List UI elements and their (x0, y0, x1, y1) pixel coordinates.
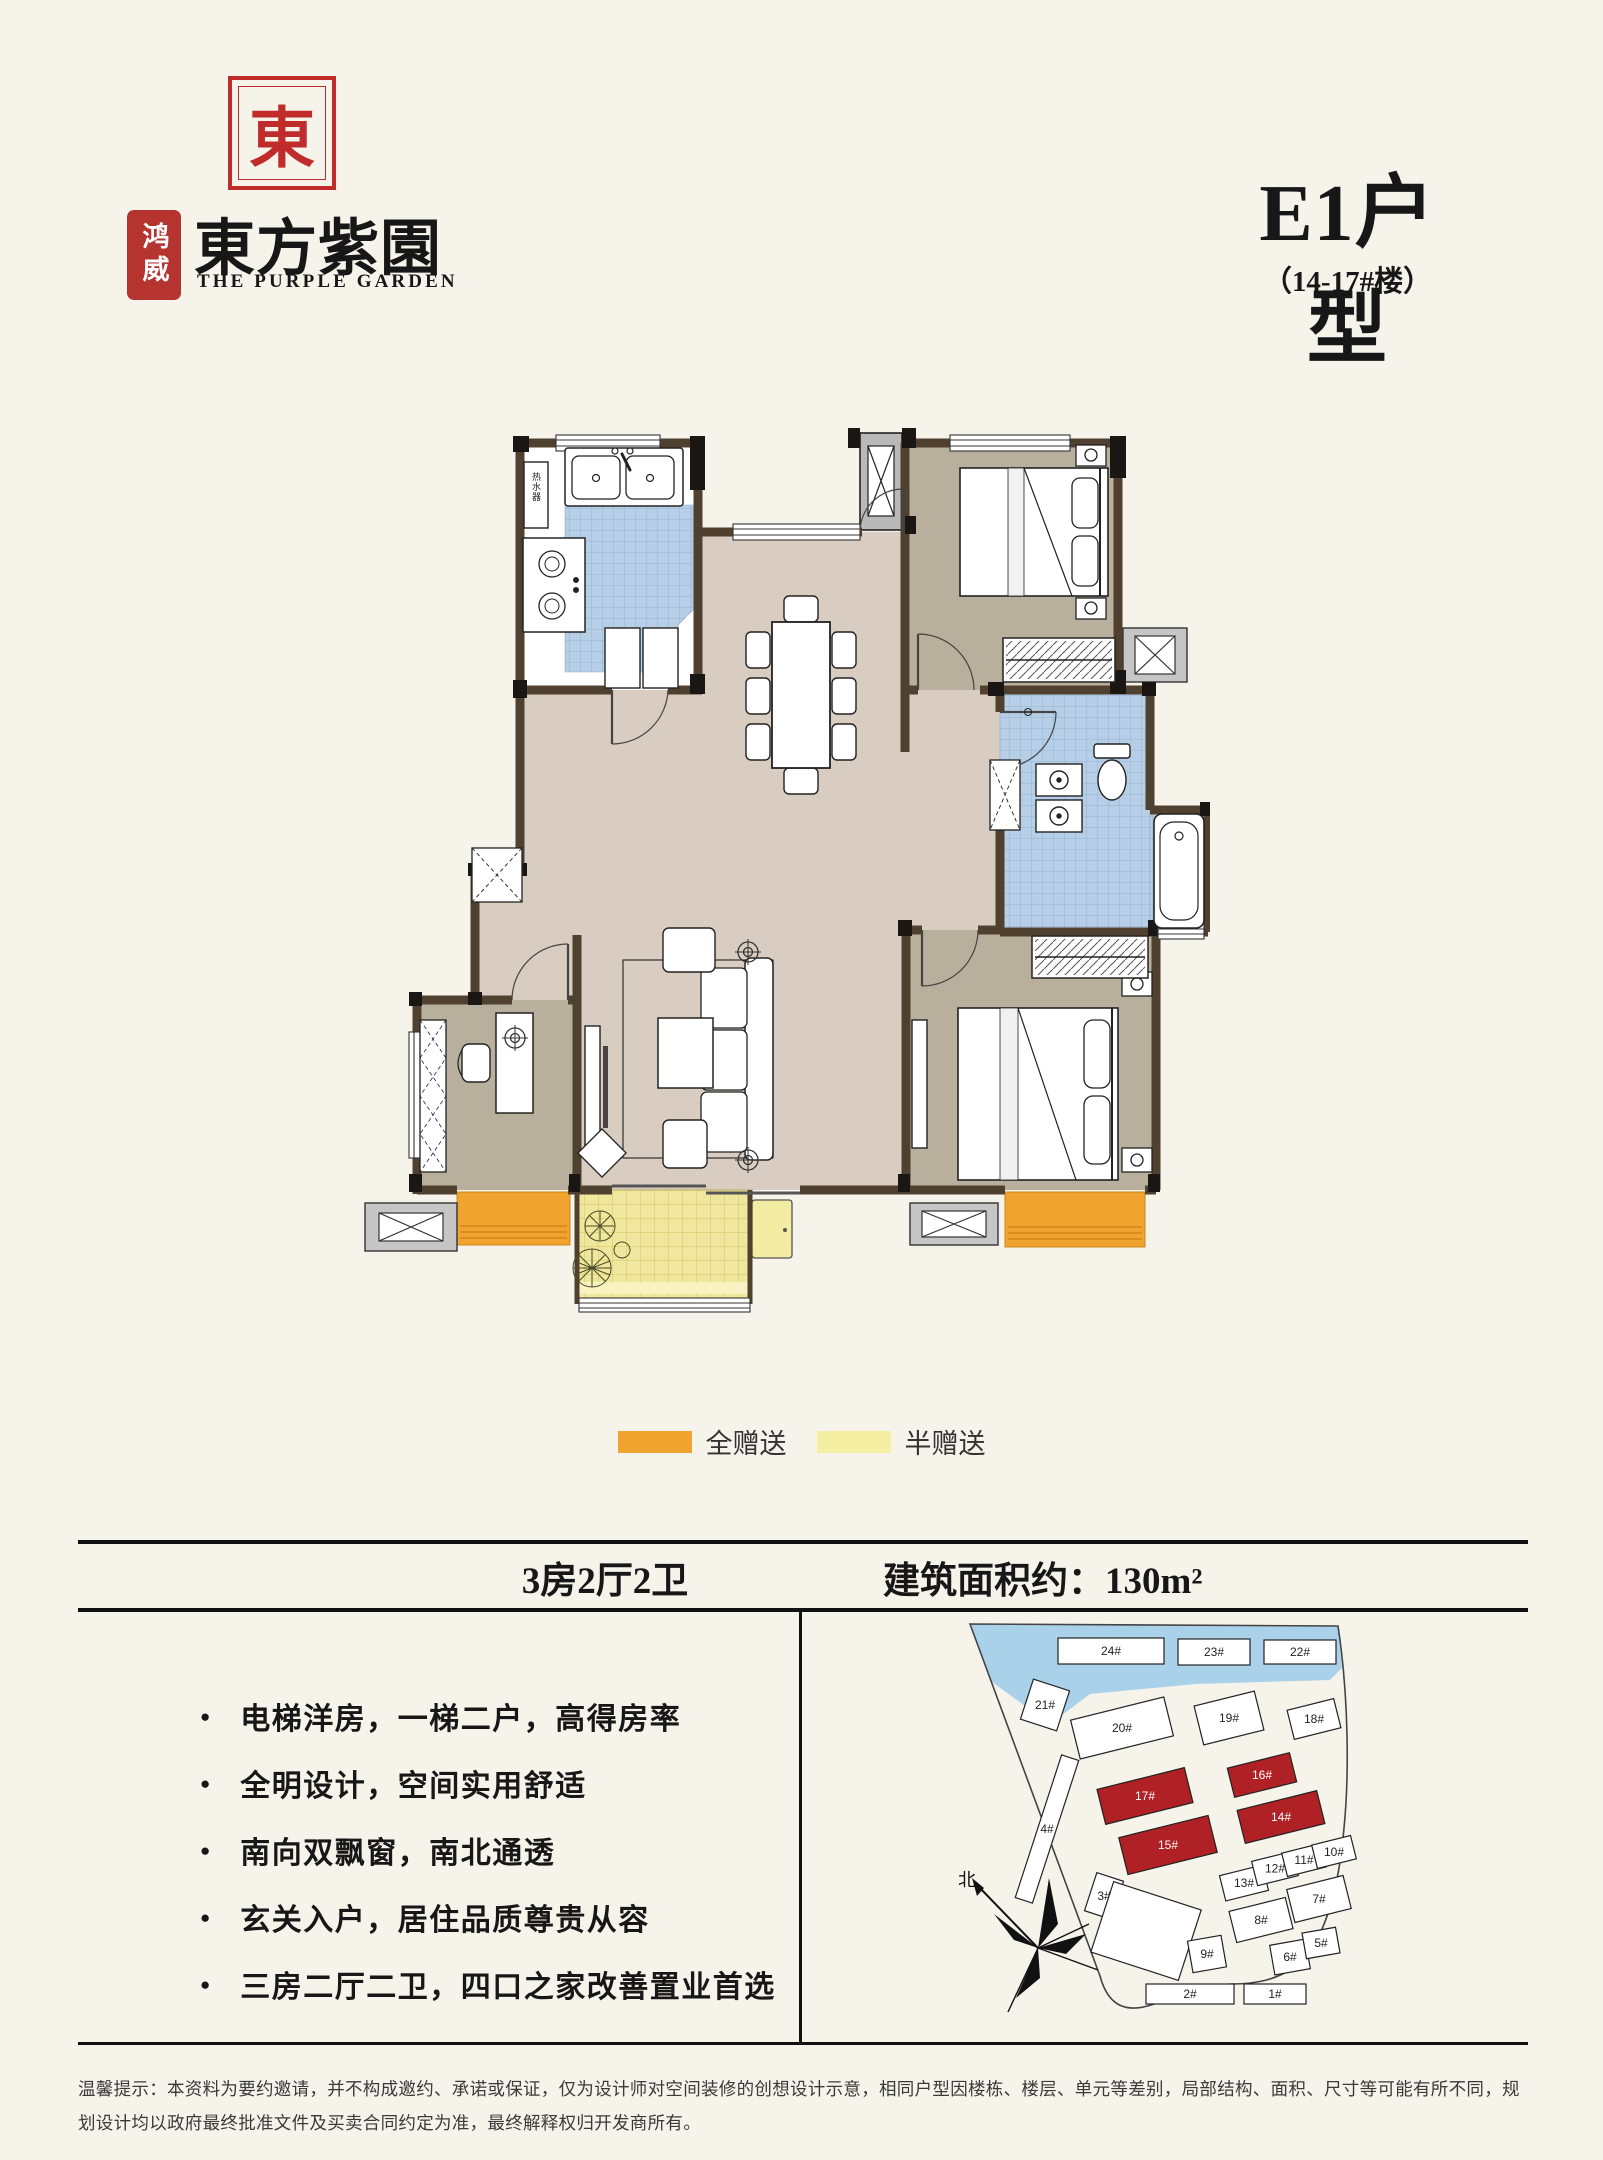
corridor-closet (990, 760, 1020, 830)
site-building-label: 7# (1312, 1892, 1326, 1906)
site-building-label: 23# (1204, 1645, 1224, 1659)
site-building-label: 14# (1271, 1810, 1291, 1824)
svg-text:热水器: 热水器 (531, 471, 541, 502)
bay-window-master (1005, 1192, 1145, 1247)
site-building-label: 17# (1135, 1789, 1155, 1803)
site-building-label: 9# (1200, 1947, 1214, 1961)
ac-platform-left (365, 1203, 457, 1251)
water-heater: 热水器 (524, 462, 548, 528)
master-wardrobe (1032, 936, 1148, 978)
elevator (860, 433, 902, 530)
ac-platform-center (910, 1203, 998, 1245)
developer-seal-icon: 鸿威 (127, 210, 181, 300)
site-building-label: 8# (1254, 1913, 1268, 1927)
divider-bottom (78, 2042, 1528, 2045)
site-building-label: 20# (1112, 1721, 1132, 1735)
hall-storage (472, 848, 522, 902)
site-building-label: 11# (1294, 1853, 1313, 1867)
site-building-label: 1# (1268, 1987, 1282, 2001)
site-building-label: 5# (1314, 1936, 1328, 1950)
legend-item-half-gift: 半赠送 (817, 1422, 986, 1461)
area-summary: 建筑面积约：130m² (883, 1550, 1202, 1604)
site-map: 24#23#22#21#20#19#18#4#17#16#15#14#3#13#… (950, 1618, 1402, 2020)
bullet-icon: ● (200, 1700, 210, 1733)
master-bed (958, 1008, 1118, 1180)
legend-label-full: 全赠送 (706, 1422, 787, 1461)
bullet-icon: ● (200, 1901, 210, 1934)
legend-swatch-full (618, 1431, 692, 1453)
bathtub (1154, 814, 1204, 928)
bedroom2-bed (960, 468, 1108, 596)
site-building-label: 13# (1234, 1876, 1254, 1890)
site-building-label: 4# (1040, 1822, 1054, 1836)
divider-middle (78, 1608, 1528, 1612)
kitchen-sink (565, 448, 683, 506)
site-building-label: 22# (1290, 1645, 1310, 1659)
site-building-label: 2# (1183, 1987, 1197, 2001)
brand-name-en: THE PURPLE GARDEN (197, 271, 458, 293)
feature-item: ●玄关入户，居住品质尊贵从容 (200, 1895, 790, 1939)
poster-page: 東 鸿威 東方紫園 THE PURPLE GARDEN E1户型 （14-17#… (0, 0, 1603, 2160)
bullet-icon: ● (200, 1834, 210, 1867)
site-building-label: 15# (1158, 1838, 1178, 1852)
brand-seal-glyph: 東 (249, 85, 315, 181)
bullet-icon: ● (200, 1968, 210, 2001)
site-building-label: 6# (1283, 1950, 1297, 1964)
site-building-label: 10# (1324, 1845, 1344, 1859)
site-building-label: 19# (1219, 1711, 1239, 1725)
legend-item-full-gift: 全赠送 (618, 1422, 787, 1461)
feature-item: ●全明设计，空间实用舒适 (200, 1761, 790, 1805)
divider-top (78, 1540, 1528, 1544)
legend-label-half: 半赠送 (905, 1422, 986, 1461)
site-building-label: 24# (1101, 1644, 1121, 1658)
feature-item: ●南向双飘窗，南北通透 (200, 1828, 790, 1872)
bullet-icon: ● (200, 1767, 210, 1800)
feature-list: ●电梯洋房，一梯二户，高得房率 ●全明设计，空间实用舒适 ●南向双飘窗，南北通透… (200, 1694, 790, 2029)
feature-item: ●电梯洋房，一梯二户，高得房率 (200, 1694, 790, 1738)
site-building-label: 18# (1304, 1712, 1324, 1726)
site-building-label: 21# (1035, 1698, 1055, 1712)
feature-item: ●三房二厅二卫，四口之家改善置业首选 (200, 1962, 790, 2006)
disclaimer: 温馨提示：本资料为要约邀请，并不构成邀约、承诺或保证，仅为设计师对空间装修的创想… (78, 2072, 1530, 2140)
bedroom2-wardrobe (1003, 638, 1115, 682)
ac-platform-right (1123, 628, 1187, 682)
divider-vertical (799, 1612, 802, 2042)
layout-summary: 3房2厅2卫 (440, 1550, 770, 1604)
study-wardrobe (420, 1020, 446, 1172)
site-building-label: 16# (1252, 1768, 1272, 1782)
unit-subtitle: （14-17#楼） (1225, 258, 1470, 300)
floor-plan: 热水器 (360, 420, 1210, 1320)
legend-swatch-half (817, 1431, 891, 1453)
legend: 全赠送 半赠送 (0, 1422, 1603, 1461)
corridor-floor (905, 690, 1000, 932)
site-building-label: 12# (1265, 1862, 1285, 1876)
kitchen-stove (523, 538, 585, 632)
bay-window-study (457, 1192, 570, 1245)
brand-seal-icon: 東 (228, 76, 336, 190)
master-dresser (912, 1020, 927, 1148)
